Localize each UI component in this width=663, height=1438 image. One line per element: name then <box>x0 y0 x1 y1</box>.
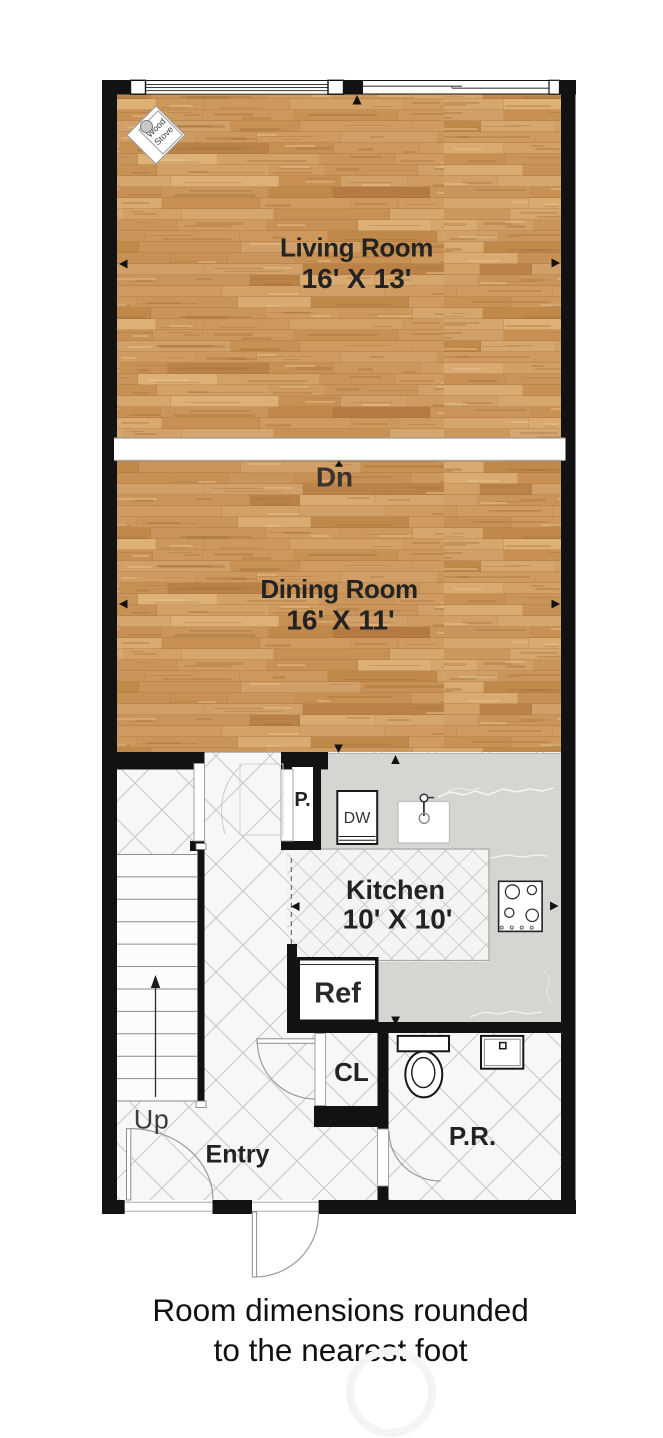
svg-text:CL: CL <box>334 1057 369 1087</box>
svg-text:Room dimensions rounded: Room dimensions rounded <box>152 1292 528 1328</box>
svg-text:P.: P. <box>294 789 310 811</box>
svg-text:16' X 13': 16' X 13' <box>302 263 412 294</box>
svg-text:Kitchen: Kitchen <box>346 875 445 905</box>
svg-text:Entry: Entry <box>206 1141 270 1169</box>
svg-text:to the nearest foot: to the nearest foot <box>214 1332 468 1368</box>
svg-text:Dining Room: Dining Room <box>260 574 417 604</box>
svg-text:DW: DW <box>344 810 372 827</box>
svg-text:Up: Up <box>134 1104 170 1134</box>
svg-text:Living Room: Living Room <box>280 233 433 263</box>
svg-text:10' X 10': 10' X 10' <box>343 903 453 934</box>
svg-text:Ref: Ref <box>314 977 361 1009</box>
svg-text:16' X 11': 16' X 11' <box>286 605 394 636</box>
svg-text:P.R.: P.R. <box>449 1121 496 1151</box>
svg-text:Dn: Dn <box>316 462 353 493</box>
